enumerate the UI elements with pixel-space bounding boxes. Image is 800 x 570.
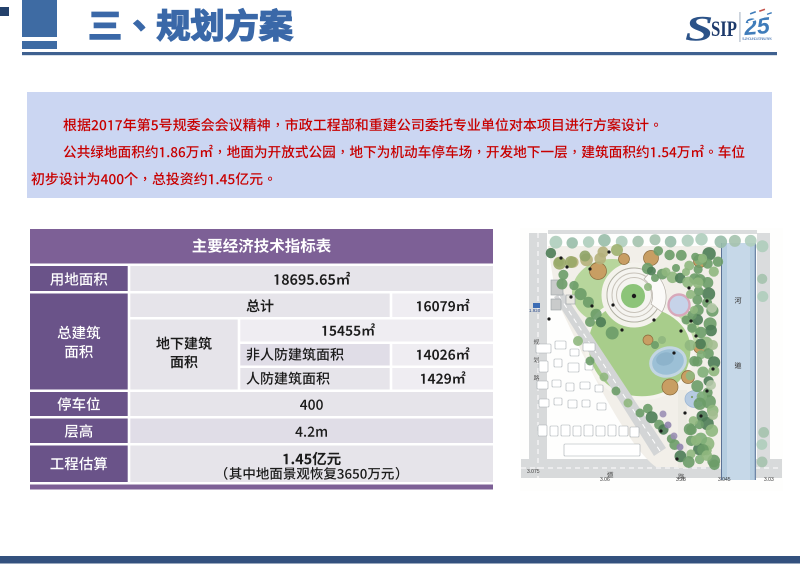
- svg-text:3.03: 3.03: [764, 477, 774, 483]
- svg-text:S: S: [685, 9, 713, 49]
- svg-text:3.075: 3.075: [527, 469, 540, 475]
- svg-text:SUZHOU INDUSTRIAL PARK: SUZHOU INDUSTRIAL PARK: [742, 37, 773, 41]
- svg-text:3.045: 3.045: [718, 477, 731, 483]
- svg-text:3.06: 3.06: [600, 477, 610, 483]
- svg-text:1.920: 1.920: [529, 308, 541, 313]
- svg-text:3.28: 3.28: [676, 477, 686, 483]
- svg-text:SIP: SIP: [711, 16, 737, 41]
